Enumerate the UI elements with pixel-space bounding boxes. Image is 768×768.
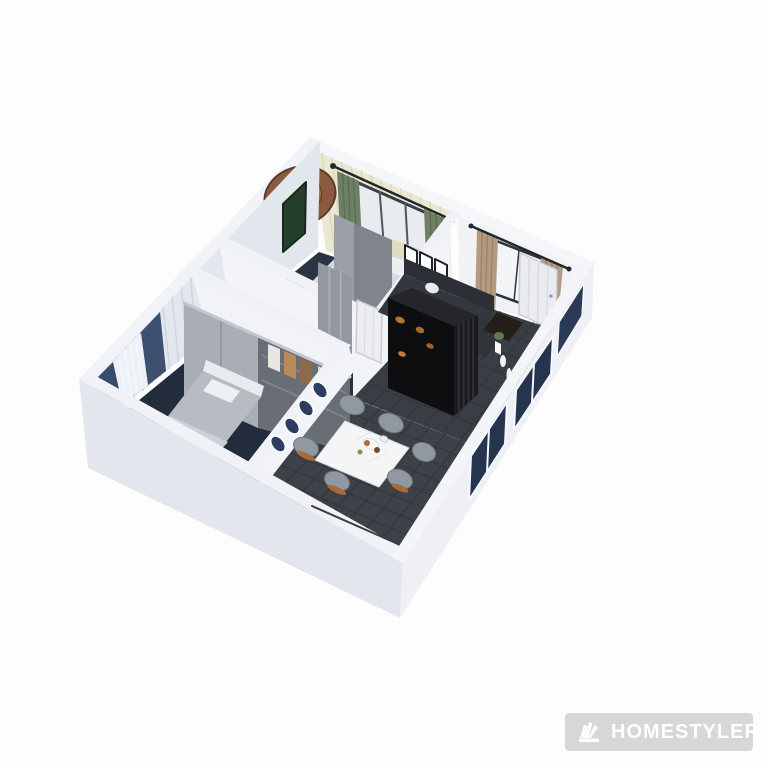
hall-door — [356, 300, 382, 363]
sill-vase-2 — [500, 355, 506, 367]
homestyler-fan-logo — [575, 718, 603, 746]
food-item-1 — [364, 440, 370, 446]
sill-plant — [494, 332, 504, 340]
living-door-panels-1 — [528, 257, 529, 318]
rod-finial-4 — [567, 267, 572, 272]
homestyler-watermark: HOMESTYLER — [565, 713, 753, 751]
watermark-label: HOMESTYLER — [611, 713, 760, 751]
rod-finial-3 — [469, 224, 474, 229]
floorplan-render — [0, 0, 768, 768]
food-item-3 — [358, 450, 363, 455]
door-knob — [549, 294, 553, 298]
rod-finial-1 — [330, 163, 336, 169]
food-item-2 — [374, 447, 380, 453]
floorplan-page: HOMESTYLER — [0, 0, 768, 768]
living-door-panels-2 — [538, 262, 539, 323]
